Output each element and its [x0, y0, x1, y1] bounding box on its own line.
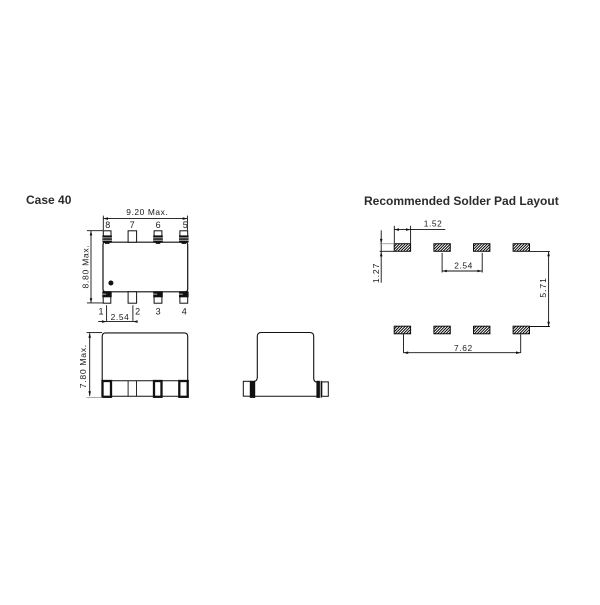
- svg-text:7.80 Max.: 7.80 Max.: [78, 344, 88, 388]
- svg-text:3: 3: [156, 306, 161, 316]
- svg-text:2: 2: [135, 306, 140, 316]
- svg-text:Recommended Solder Pad Layout: Recommended Solder Pad Layout: [364, 194, 559, 208]
- svg-text:2.54: 2.54: [111, 312, 130, 322]
- svg-text:7.62: 7.62: [454, 343, 473, 353]
- svg-text:7: 7: [130, 220, 135, 230]
- svg-text:2.54: 2.54: [454, 260, 473, 270]
- svg-text:Case 40: Case 40: [26, 193, 72, 207]
- svg-text:8: 8: [105, 220, 110, 230]
- svg-text:9.20 Max.: 9.20 Max.: [126, 207, 168, 217]
- svg-text:6: 6: [156, 220, 161, 230]
- svg-text:1.52: 1.52: [424, 219, 443, 229]
- svg-text:1: 1: [98, 306, 103, 316]
- svg-text:8.80 Max.: 8.80 Max.: [81, 244, 91, 288]
- svg-text:4: 4: [182, 306, 187, 316]
- svg-text:1.27: 1.27: [371, 263, 381, 283]
- svg-text:5.71: 5.71: [538, 277, 548, 297]
